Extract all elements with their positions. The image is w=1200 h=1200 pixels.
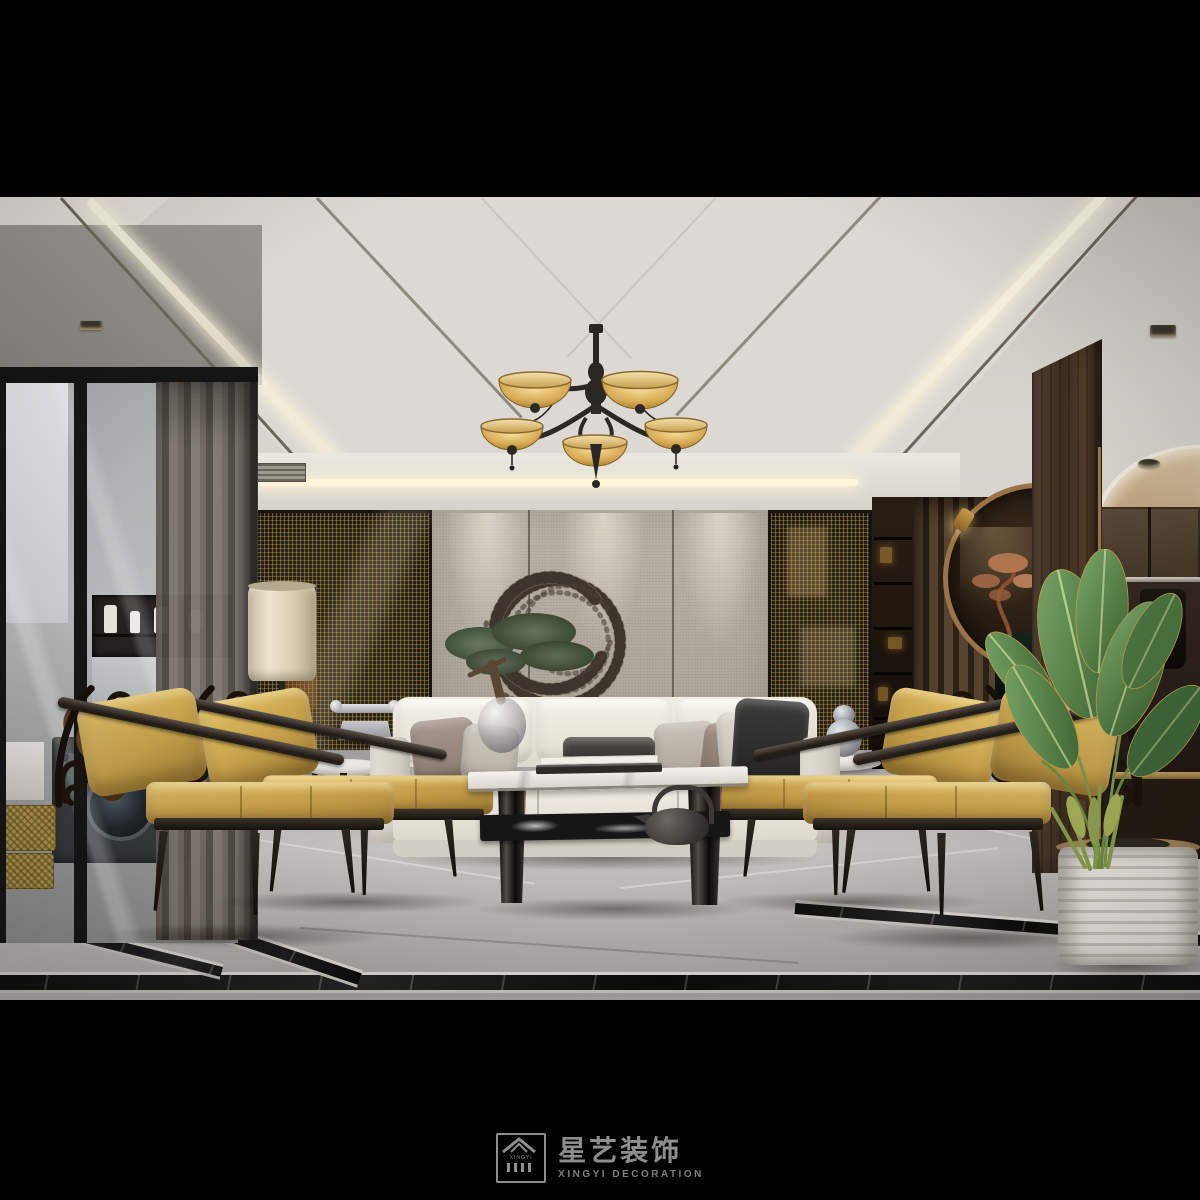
watermark: XINGYI 星艺装饰 XINGYI DECORATION xyxy=(0,1133,1200,1183)
chair-leg xyxy=(934,833,949,915)
floor-inlay-border-front xyxy=(0,975,1200,990)
shelf xyxy=(874,627,912,630)
chair-leg xyxy=(738,818,759,877)
coffee-table-leg xyxy=(498,785,526,903)
watermark-text: 星艺装饰 XINGYI DECORATION xyxy=(558,1136,704,1181)
downlight-icon xyxy=(1150,325,1176,337)
seat-seam xyxy=(783,779,785,809)
glass-frame xyxy=(0,383,6,943)
shelf xyxy=(874,537,912,540)
icon-label: XINGYI xyxy=(498,1155,544,1161)
chair-frame-rail xyxy=(154,818,384,830)
shelf-ornament xyxy=(880,547,892,563)
room-glow-behind-mesh xyxy=(800,627,855,687)
interior-render xyxy=(0,197,1200,1000)
xingyi-house-icon: XINGYI xyxy=(496,1133,546,1183)
chair-leg xyxy=(836,828,859,893)
seat-seam xyxy=(885,786,887,819)
seat-seam xyxy=(310,786,312,819)
chair-leg xyxy=(148,830,171,911)
amber-bowl xyxy=(481,419,543,471)
amber-bowl xyxy=(645,418,707,470)
room-glow-behind-mesh xyxy=(787,527,827,597)
screenshot-canvas: XINGYI 星艺装饰 XINGYI DECORATION xyxy=(0,0,1200,1200)
chandelier xyxy=(440,322,760,507)
brand-subtitle: XINGYI DECORATION xyxy=(558,1169,704,1180)
amber-bowl xyxy=(499,372,571,413)
iron-teapot xyxy=(645,808,709,845)
seat-seam xyxy=(240,786,242,819)
chair-shadow xyxy=(90,923,390,949)
downlight-icon xyxy=(1138,459,1160,468)
shelf xyxy=(874,672,912,675)
bonsai-foliage xyxy=(520,641,594,671)
bird-of-paradise-plant xyxy=(980,549,1200,879)
downlight-icon xyxy=(80,321,102,330)
brand-name: 星艺装饰 xyxy=(558,1136,704,1167)
chair-leg xyxy=(338,828,361,893)
seat-seam xyxy=(415,779,417,809)
chair-leg xyxy=(441,818,462,877)
letterbox-top xyxy=(0,0,1200,197)
chair-leg xyxy=(248,833,263,915)
floor-lamp-shade xyxy=(248,585,316,681)
seat-seam xyxy=(955,786,957,819)
armchair-front-left xyxy=(52,687,397,915)
shelf xyxy=(874,582,912,585)
amber-bowl xyxy=(602,372,678,415)
shelf-ornament xyxy=(888,637,902,649)
